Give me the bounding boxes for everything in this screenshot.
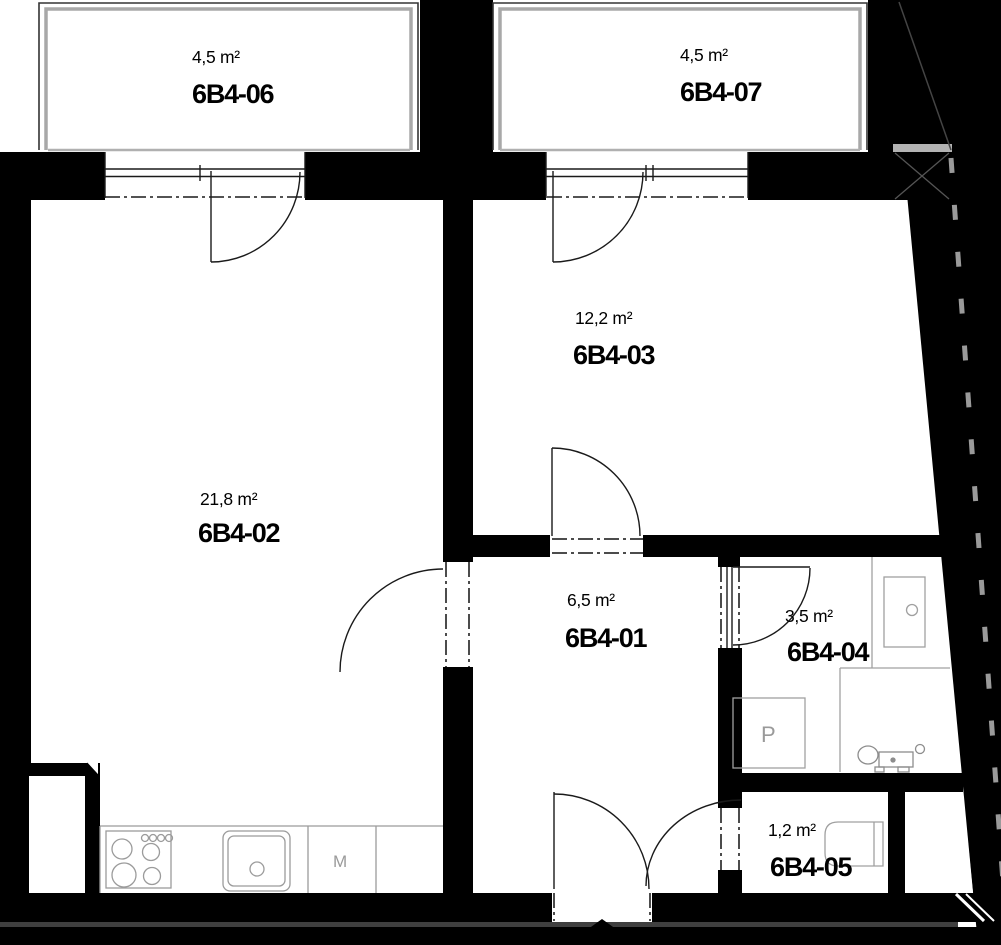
wall-hall-bath-stub <box>718 557 740 567</box>
toilet-button <box>891 758 895 762</box>
wall-hall-bath-lower <box>718 648 742 700</box>
shaft-gray-bar <box>893 144 952 152</box>
room-id-6b4-07: 6B4-07 <box>680 77 762 107</box>
wall-left <box>0 200 31 775</box>
wall-hall-top-left <box>473 535 550 557</box>
wall-between-balconies <box>420 0 493 152</box>
room-area-6b4-06: 4,5 m² <box>192 47 240 67</box>
wall-niche-right <box>85 775 100 893</box>
kitchen-unit-m-label: M <box>333 852 348 871</box>
room-id-6b4-04: 6B4-04 <box>787 637 870 667</box>
wall-top-left <box>0 152 105 200</box>
wall-storage-right <box>888 792 905 893</box>
room-area-6b4-04: 3,5 m² <box>785 606 833 626</box>
wall-living-bedroom <box>443 200 473 562</box>
room-area-6b4-07: 4,5 m² <box>680 45 728 65</box>
recess-right-of-storage <box>905 792 973 893</box>
room-id-6b4-02: 6B4-02 <box>198 518 280 548</box>
floorplan-canvas: 4,5 m² 6B4-06 4,5 m² 6B4-07 21,8 m² 6B4-… <box>0 0 1001 945</box>
room-area-6b4-02: 21,8 m² <box>200 489 258 509</box>
wall-bath-storage <box>718 773 963 792</box>
wall-hall-top-right <box>643 535 943 557</box>
room-id-6b4-03: 6B4-03 <box>573 340 656 370</box>
wall-top-right-block <box>868 0 1001 152</box>
wall-left-lower <box>0 775 29 895</box>
wall-living-hall-lower <box>443 700 473 893</box>
room-id-6b4-06: 6B4-06 <box>192 79 275 109</box>
room-id-6b4-01: 6B4-01 <box>565 623 648 653</box>
wall-top-right <box>748 152 908 200</box>
wall-top-middle <box>305 152 546 200</box>
wall-bottom <box>0 893 1001 922</box>
room-area-6b4-05: 1,2 m² <box>768 820 816 840</box>
room-area-6b4-01: 6,5 m² <box>567 590 615 610</box>
wall-living-hall-block <box>443 667 473 700</box>
bottom-strip <box>0 922 958 927</box>
room-id-6b4-05: 6B4-05 <box>770 852 853 882</box>
room-area-6b4-03: 12,2 m² <box>575 308 633 328</box>
bottom-base <box>0 927 1001 945</box>
wall-niche-top <box>0 763 100 776</box>
bathroom-unit-p-label: P <box>761 722 776 747</box>
floorplan-drawing: 4,5 m² 6B4-06 4,5 m² 6B4-07 21,8 m² 6B4-… <box>0 0 1001 945</box>
entrance-opening <box>552 893 652 922</box>
wall-hall-right-bottom <box>718 870 742 893</box>
